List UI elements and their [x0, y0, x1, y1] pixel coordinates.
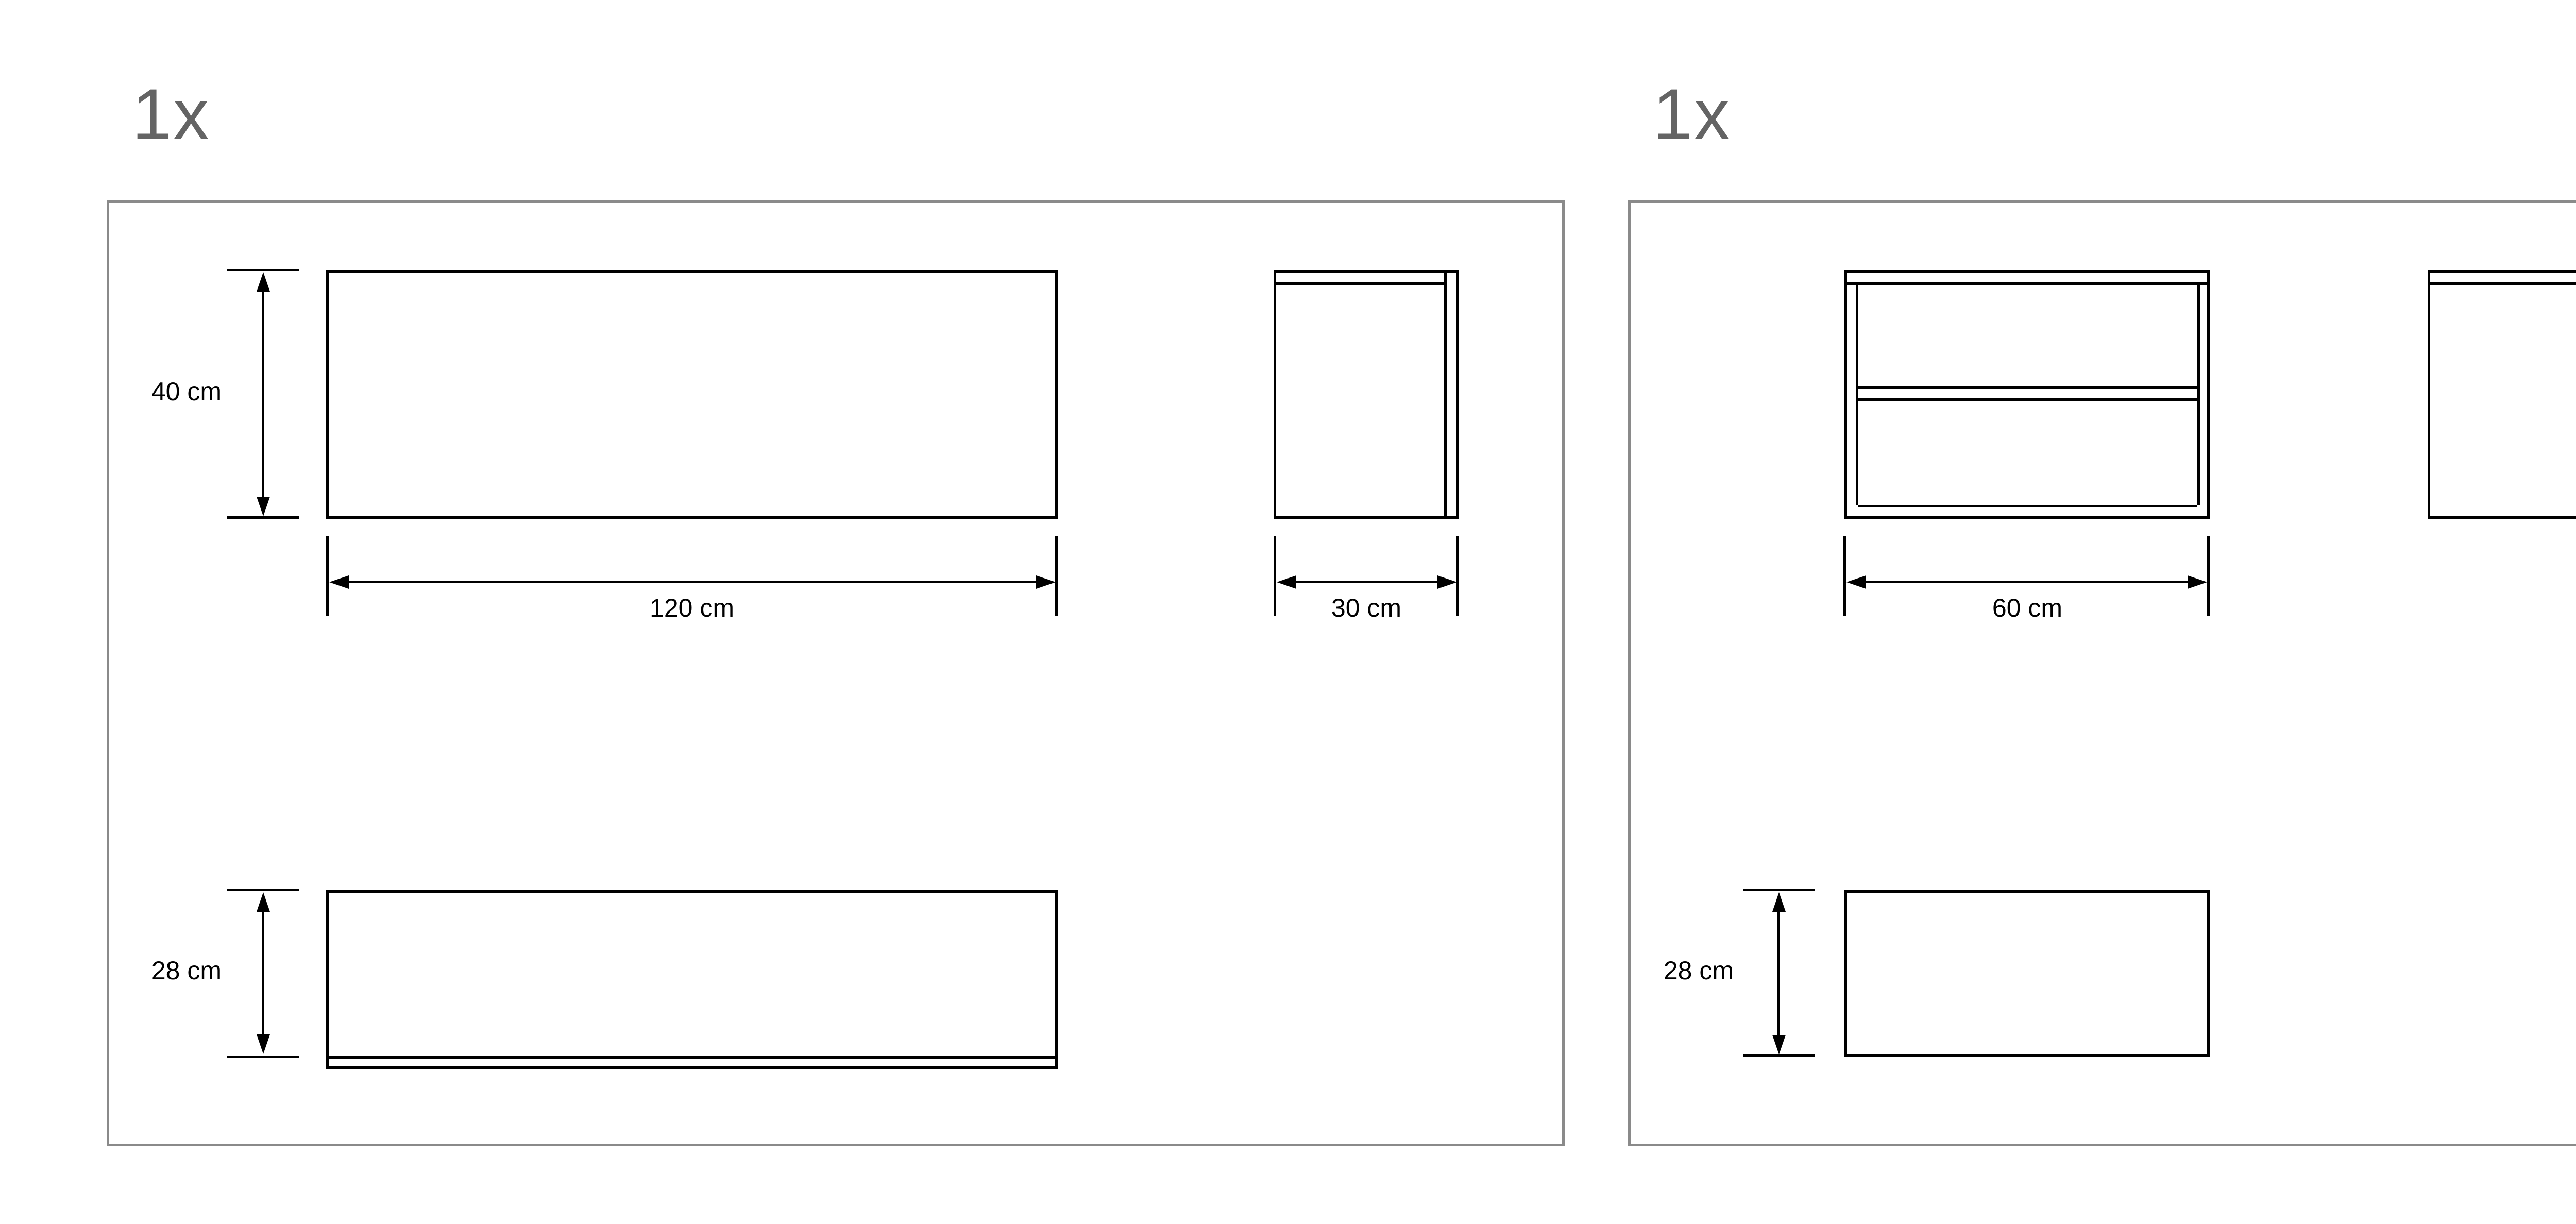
arrowhead-down-icon	[1772, 1035, 1786, 1055]
cabinet-bottom-board-line	[1858, 505, 2197, 507]
arrowhead-left-icon	[329, 575, 349, 589]
dim-line-vertical	[262, 277, 264, 513]
arrowhead-down-icon	[257, 1034, 270, 1054]
cabinet-front-view-rect	[1844, 270, 2210, 519]
dim-tick	[1743, 889, 1815, 891]
arrowhead-right-icon	[1036, 575, 1056, 589]
dim-label-bottom-board-height: 28 cm	[67, 955, 222, 986]
arrowhead-up-icon	[257, 892, 270, 912]
dim-label-bottom-board-height: 28 cm	[1579, 955, 1734, 986]
bottom-board-rect	[326, 890, 1058, 1069]
dim-tick	[2207, 536, 2210, 616]
dim-tick	[1843, 536, 1846, 616]
dim-tick	[1274, 536, 1276, 616]
side-view-back-panel-line	[1444, 273, 1447, 516]
arrowhead-right-icon	[2188, 575, 2207, 589]
drawing-sheet: 1x 1x 40 cm 120 cm 30 cm	[0, 0, 2576, 1224]
cabinet-shelf-top-line	[1858, 386, 2197, 389]
side-view-top-board-line	[2430, 282, 2576, 285]
arrowhead-right-icon	[1437, 575, 1457, 589]
dim-tick	[227, 1056, 299, 1058]
cabinet-left-side-line	[1856, 285, 1858, 505]
side-view-rect	[1274, 270, 1459, 519]
side-view-rect	[2428, 270, 2576, 519]
arrowhead-up-icon	[1772, 892, 1786, 912]
dim-label-front-width: 120 cm	[589, 592, 795, 623]
parts-panel-right: 60 cm 40 cm 28 cm	[1628, 200, 2576, 1146]
dim-label-side-width: 30 cm	[1289, 592, 1444, 623]
quantity-label-right: 1x	[1653, 78, 1731, 150]
arrowhead-left-icon	[1277, 575, 1296, 589]
dim-line-vertical	[262, 912, 264, 1034]
dim-tick	[227, 516, 299, 519]
dim-tick	[227, 889, 299, 891]
cabinet-top-board-line	[1847, 282, 2207, 285]
dim-line-horizontal	[1866, 581, 2188, 583]
dim-tick	[326, 536, 329, 616]
dim-label-cabinet-width: 60 cm	[1950, 592, 2105, 623]
dim-line-vertical	[1777, 912, 1780, 1035]
parts-panel-left: 40 cm 120 cm 30 cm 28 cm	[107, 200, 1565, 1146]
bottom-board-rect	[1844, 890, 2210, 1057]
arrowhead-up-icon	[257, 272, 270, 292]
side-view-top-board-line	[1276, 282, 1444, 285]
cabinet-right-side-line	[2197, 285, 2200, 505]
front-view-rect	[326, 270, 1058, 519]
dim-line-horizontal	[1296, 581, 1437, 583]
dim-tick	[227, 269, 299, 271]
quantity-label-left: 1x	[132, 78, 210, 150]
bottom-board-edge-line	[329, 1056, 1055, 1059]
cabinet-shelf-bottom-line	[1858, 398, 2197, 401]
dim-label-front-height: 40 cm	[67, 376, 222, 407]
dim-line-horizontal	[349, 581, 1036, 583]
arrowhead-down-icon	[257, 497, 270, 516]
arrowhead-left-icon	[1846, 575, 1866, 589]
